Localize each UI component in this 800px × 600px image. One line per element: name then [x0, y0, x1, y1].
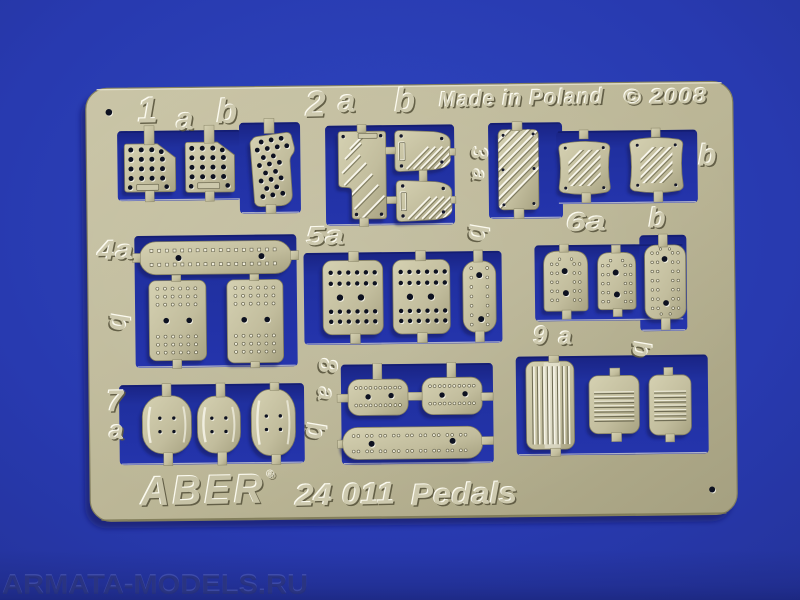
- svg-text:a: a: [558, 323, 572, 350]
- svg-text:b: b: [394, 82, 416, 120]
- svg-text:b: b: [698, 139, 717, 172]
- svg-text:Pedals: Pedals: [411, 477, 518, 512]
- svg-text:b: b: [104, 313, 135, 331]
- svg-text:b: b: [627, 341, 657, 358]
- svg-text:8: 8: [313, 358, 343, 374]
- svg-text:a: a: [467, 169, 490, 182]
- svg-text:4a: 4a: [96, 235, 134, 266]
- svg-text:2: 2: [304, 83, 326, 124]
- svg-text:5a: 5a: [306, 220, 345, 251]
- svg-text:a: a: [109, 415, 124, 445]
- svg-text:b: b: [648, 202, 666, 233]
- svg-text:3: 3: [466, 146, 492, 160]
- svg-text:b: b: [463, 224, 494, 242]
- svg-text:a: a: [312, 387, 339, 401]
- svg-text:ABER: ABER: [139, 466, 266, 515]
- svg-text:6a: 6a: [566, 206, 607, 237]
- svg-text:Made in Poland: Made in Poland: [439, 84, 605, 113]
- svg-text:a: a: [176, 101, 194, 136]
- svg-text:24 011: 24 011: [294, 477, 396, 512]
- svg-text:9: 9: [533, 320, 549, 350]
- svg-text:1: 1: [137, 89, 158, 130]
- svg-text:b: b: [300, 422, 331, 440]
- svg-text:© 2008: © 2008: [623, 85, 708, 110]
- svg-text:b: b: [216, 93, 238, 131]
- svg-text:ARMATA-MODELS.RU: ARMATA-MODELS.RU: [2, 570, 308, 600]
- svg-text:®: ®: [267, 469, 276, 481]
- svg-text:a: a: [338, 84, 356, 119]
